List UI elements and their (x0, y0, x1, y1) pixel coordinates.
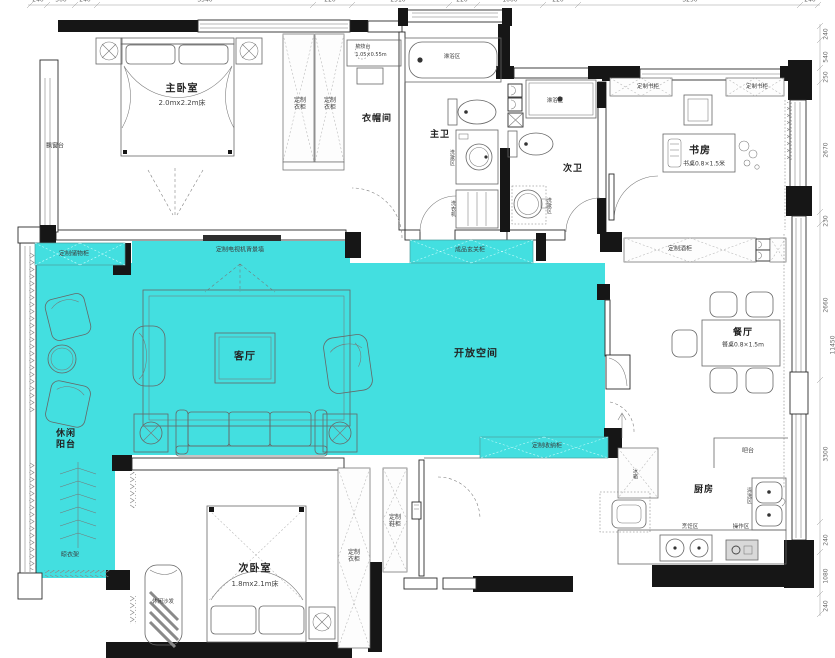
highlight-open-zone (35, 240, 608, 578)
floorplan-graphic (0, 0, 835, 658)
study-furniture (609, 95, 785, 230)
second-bedroom-furniture (145, 506, 335, 647)
floorplan-page: 主卧室 2.0mx2.2m床 衣帽间 主卫 次卫 书房 书桌0.8×1.5米 客… (0, 0, 835, 658)
master-bath-fixtures (405, 38, 501, 232)
dining-furniture (672, 234, 784, 488)
kitchen-fixtures (600, 438, 788, 564)
master-bedroom-furniture (96, 38, 262, 215)
second-bath-fixtures (508, 80, 600, 232)
